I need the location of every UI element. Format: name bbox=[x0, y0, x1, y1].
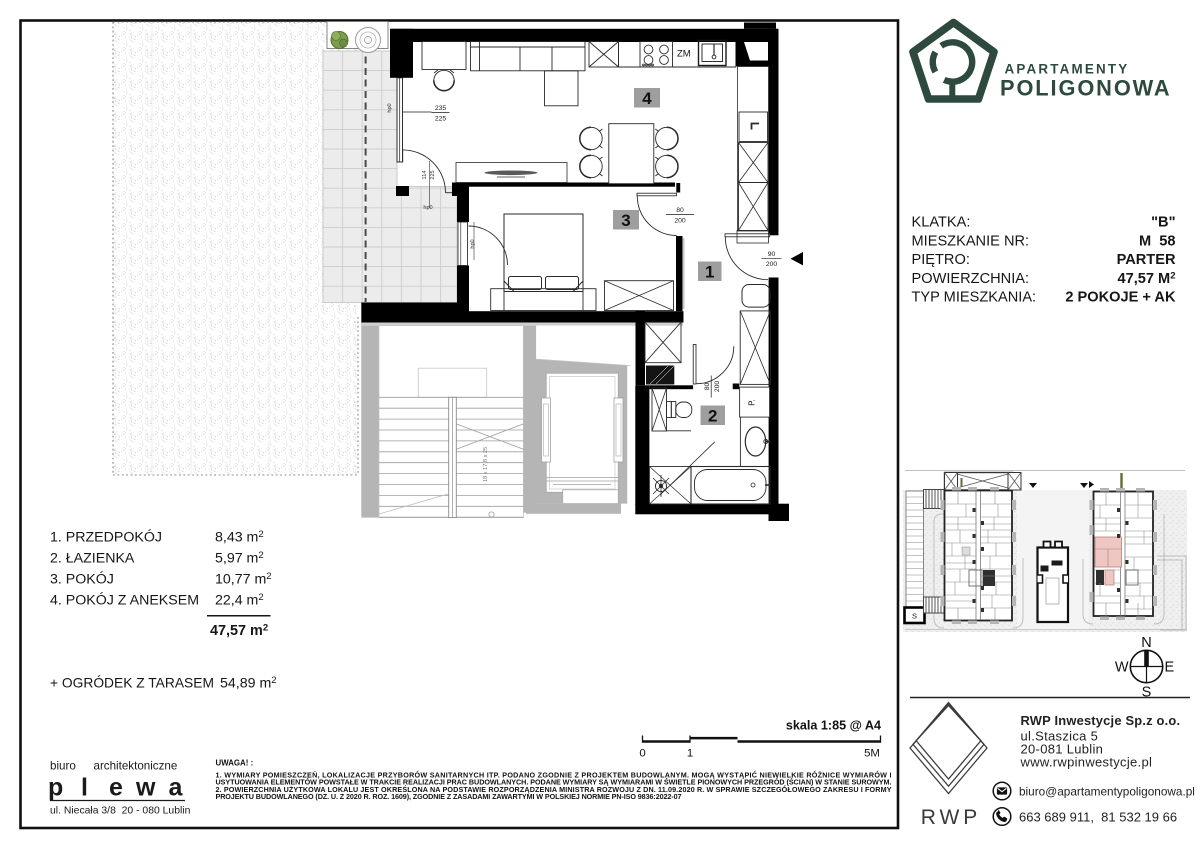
svg-text:ZM: ZM bbox=[677, 49, 691, 60]
svg-text:ul. Niecała 3/8 20 - 080 Lubl: ul. Niecała 3/8 20 - 080 Lublin bbox=[50, 806, 191, 817]
svg-text:skala 1:85 @ A4: skala 1:85 @ A4 bbox=[786, 719, 881, 733]
svg-text:2: 2 bbox=[708, 407, 717, 426]
svg-text:a: a bbox=[169, 774, 184, 802]
svg-text:RWP: RWP bbox=[921, 806, 982, 829]
svg-text:0: 0 bbox=[639, 748, 645, 760]
svg-text:TYP MIESZKANIA:: TYP MIESZKANIA: bbox=[912, 290, 1037, 306]
svg-text:225: 225 bbox=[430, 170, 436, 179]
svg-text:M 58: M 58 bbox=[1139, 233, 1176, 249]
svg-text:UWAGA! :: UWAGA! : bbox=[216, 759, 254, 768]
svg-text:hp0: hp0 bbox=[387, 103, 393, 112]
svg-text:PARTER: PARTER bbox=[1117, 252, 1176, 268]
svg-text:47,57 m2: 47,57 m2 bbox=[210, 623, 268, 640]
svg-text:1: 1 bbox=[705, 263, 714, 282]
svg-text:1. PRZEDPOKÓJ: 1. PRZEDPOKÓJ bbox=[50, 529, 162, 546]
svg-text:114: 114 bbox=[422, 171, 428, 180]
svg-text:18 x 17,8 x 25: 18 x 17,8 x 25 bbox=[483, 447, 489, 482]
svg-text:2 POKOJE + AK: 2 POKOJE + AK bbox=[1065, 290, 1176, 306]
svg-text:225: 225 bbox=[435, 116, 447, 123]
svg-text:PIĘTRO:: PIĘTRO: bbox=[912, 252, 970, 268]
svg-text:APARTAMENTY: APARTAMENTY bbox=[1005, 62, 1130, 77]
svg-text:"B": "B" bbox=[1151, 215, 1175, 231]
svg-text:200: 200 bbox=[674, 218, 686, 225]
svg-text:4: 4 bbox=[642, 89, 652, 108]
svg-text:W: W bbox=[1115, 660, 1129, 676]
svg-text:S: S bbox=[912, 612, 917, 621]
svg-text:22,4 m2: 22,4 m2 bbox=[215, 592, 264, 609]
svg-text:90: 90 bbox=[768, 251, 776, 258]
svg-text:3. POKÓJ: 3. POKÓJ bbox=[50, 571, 114, 588]
svg-text:biuro@apartamentypoligonowa.pl: biuro@apartamentypoligonowa.pl bbox=[1019, 785, 1195, 799]
svg-text:POWIERZCHNIA:: POWIERZCHNIA: bbox=[912, 271, 1030, 287]
svg-text:PROJEKTU BUDOWLANEGO (DZ. U. Z: PROJEKTU BUDOWLANEGO (DZ. U. Z 2020 R. R… bbox=[216, 792, 682, 801]
svg-text:5,97 m2: 5,97 m2 bbox=[215, 550, 264, 567]
svg-text:N: N bbox=[1141, 635, 1151, 651]
svg-text:54,89 m2: 54,89 m2 bbox=[220, 675, 277, 692]
svg-text:+ OGRÓDEK Z TARASEM: + OGRÓDEK Z TARASEM bbox=[50, 675, 214, 691]
svg-text:POLIGONOWA: POLIGONOWA bbox=[1000, 76, 1172, 101]
svg-text:200: 200 bbox=[766, 261, 778, 268]
svg-text:www.rwpinwestycje.pl: www.rwpinwestycje.pl bbox=[1020, 755, 1153, 770]
svg-text:RWP Inwestycje Sp.z o.o.: RWP Inwestycje Sp.z o.o. bbox=[1021, 713, 1181, 728]
svg-text:E: E bbox=[1165, 660, 1175, 676]
svg-text:l: l bbox=[81, 774, 88, 802]
svg-text:3: 3 bbox=[621, 211, 630, 230]
svg-text:e: e bbox=[109, 774, 123, 802]
svg-text:p: p bbox=[48, 774, 63, 802]
svg-text:P.: P. bbox=[748, 399, 757, 406]
svg-text:80: 80 bbox=[704, 383, 711, 391]
svg-text:2. ŁAZIENKA: 2. ŁAZIENKA bbox=[50, 551, 135, 567]
svg-text:hp0: hp0 bbox=[470, 239, 476, 248]
svg-text:235: 235 bbox=[435, 105, 447, 112]
svg-text:47,57 M2: 47,57 M2 bbox=[1117, 271, 1175, 288]
svg-text:1: 1 bbox=[687, 748, 693, 760]
svg-text:4. POKÓJ Z ANEKSEM: 4. POKÓJ Z ANEKSEM bbox=[50, 592, 199, 609]
svg-text:MIESZKANIE NR:: MIESZKANIE NR: bbox=[912, 233, 1030, 249]
svg-text:5M: 5M bbox=[864, 748, 880, 760]
svg-text:w: w bbox=[135, 774, 156, 802]
svg-text:8,43 m2: 8,43 m2 bbox=[215, 529, 264, 546]
svg-text:hp0: hp0 bbox=[423, 205, 432, 211]
svg-text:architektoniczne: architektoniczne bbox=[94, 760, 178, 773]
svg-text:663 689 911, 81 532 19 66: 663 689 911, 81 532 19 66 bbox=[1019, 810, 1177, 825]
svg-text:10,77 m2: 10,77 m2 bbox=[215, 571, 272, 588]
svg-text:200: 200 bbox=[714, 381, 721, 393]
svg-text:80: 80 bbox=[676, 207, 684, 214]
svg-text:KLATKA:: KLATKA: bbox=[912, 215, 971, 231]
svg-text:biuro: biuro bbox=[50, 760, 76, 773]
